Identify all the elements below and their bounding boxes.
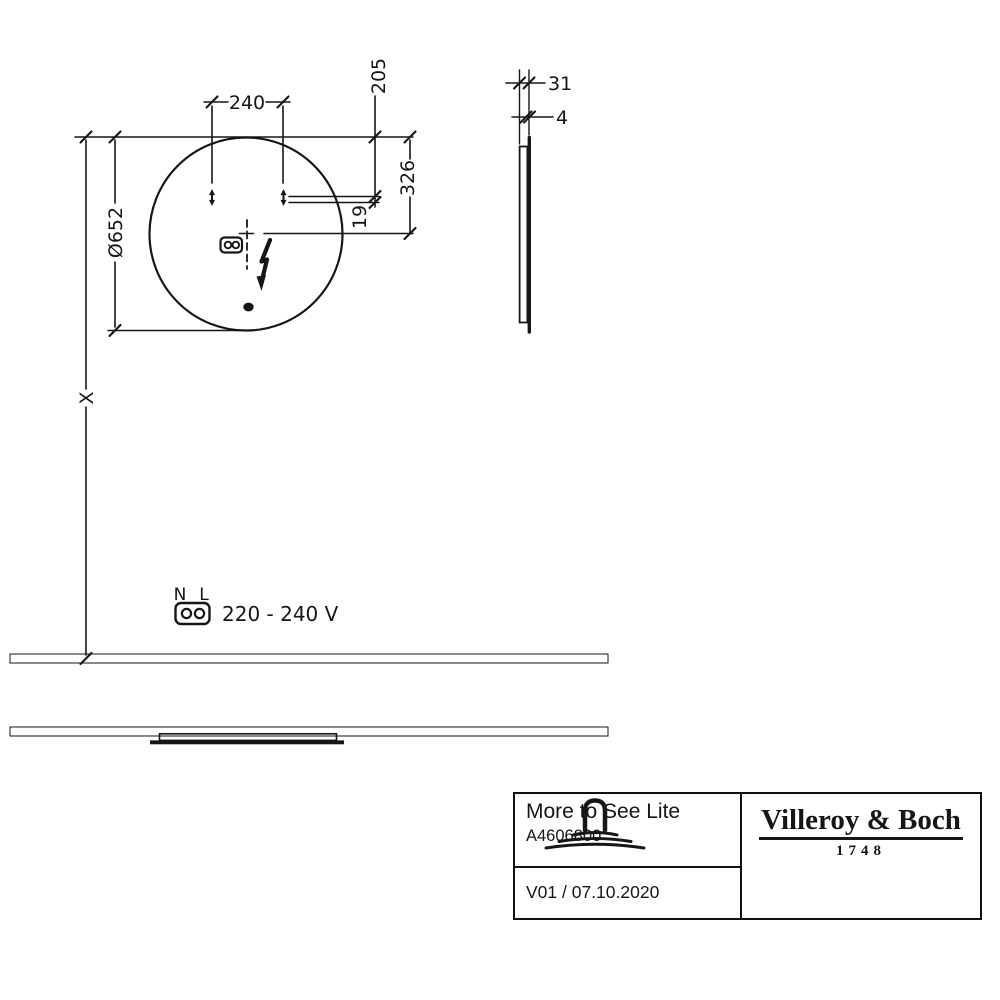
terminal-block-icon <box>176 603 210 624</box>
mirror-terminal-box <box>221 238 243 253</box>
wall-section-lower <box>10 727 608 736</box>
voltage-label: 220 - 240 V <box>222 602 339 626</box>
lightning-bolt-icon <box>257 240 271 291</box>
hole-spacing-label: 240 <box>229 92 265 114</box>
mirror-body-profile <box>520 147 528 323</box>
wall-section-upper <box>10 654 608 663</box>
mount-height-label: X <box>76 391 98 404</box>
brand-arch-icon <box>515 794 675 850</box>
mounting-hole-left <box>209 189 215 206</box>
center-from-top-label: 326 <box>397 160 419 196</box>
brand-name: Villeroy & Boch <box>759 806 963 840</box>
side-view: 31 4 <box>506 70 572 332</box>
sensor-dot <box>243 303 253 312</box>
mirror-glass-plan <box>150 740 344 744</box>
dimension-depth: 31 <box>506 73 572 95</box>
mirror-body-plan <box>160 734 337 741</box>
dimension-center-from-top: 326 <box>397 140 419 239</box>
dimension-cable-offset: 19 <box>289 191 381 229</box>
glass-thickness-label: 4 <box>556 107 568 129</box>
front-view: X Ø652 240 <box>75 58 419 664</box>
version-cell: V01 / 07.10.2020 <box>515 868 740 919</box>
brand-cell: Villeroy & Boch 1748 <box>742 794 980 918</box>
technical-drawing-page: X Ø652 240 <box>0 0 1000 1000</box>
version-date: V01 / 07.10.2020 <box>526 882 659 903</box>
title-block: More to See Lite A4606800 V01 / 07.10.20… <box>513 792 982 920</box>
cable-offset-label: 19 <box>349 205 371 229</box>
depth-label: 31 <box>548 73 572 95</box>
dimension-drawing: X Ø652 240 <box>0 0 1000 780</box>
brand-year: 1748 <box>836 843 886 860</box>
holes-from-top-label: 205 <box>368 58 390 94</box>
diameter-label: Ø652 <box>105 207 127 258</box>
power-connection: N L 220 - 240 V <box>174 585 339 626</box>
mounting-hole-right <box>281 189 287 206</box>
plan-view <box>150 734 344 745</box>
dimension-mount-height: X <box>76 140 98 664</box>
dimension-glass-thickness: 4 <box>512 107 568 129</box>
